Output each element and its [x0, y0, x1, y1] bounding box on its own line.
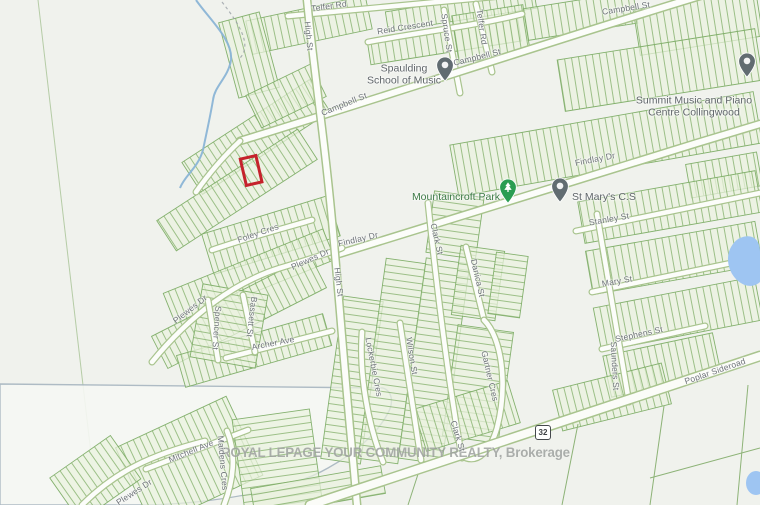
poi-pin-st-marys-cs[interactable] [550, 177, 570, 204]
poi-pin-spaulding-school-of-music[interactable] [435, 56, 455, 83]
map-pin-icon [435, 56, 455, 83]
map-pin-icon [550, 177, 570, 204]
map-canvas[interactable] [0, 0, 760, 505]
map-pin-icon [498, 178, 518, 205]
poi-pin-summit-music-and-piano-centre-collingwood[interactable] [737, 52, 757, 79]
poi-pin-mountaincroft-park[interactable] [498, 178, 518, 205]
map-viewport: 32 ROYAL LEPAGE YOUR COMMUNITY REALTY, B… [0, 0, 760, 505]
map-pin-icon [737, 52, 757, 79]
